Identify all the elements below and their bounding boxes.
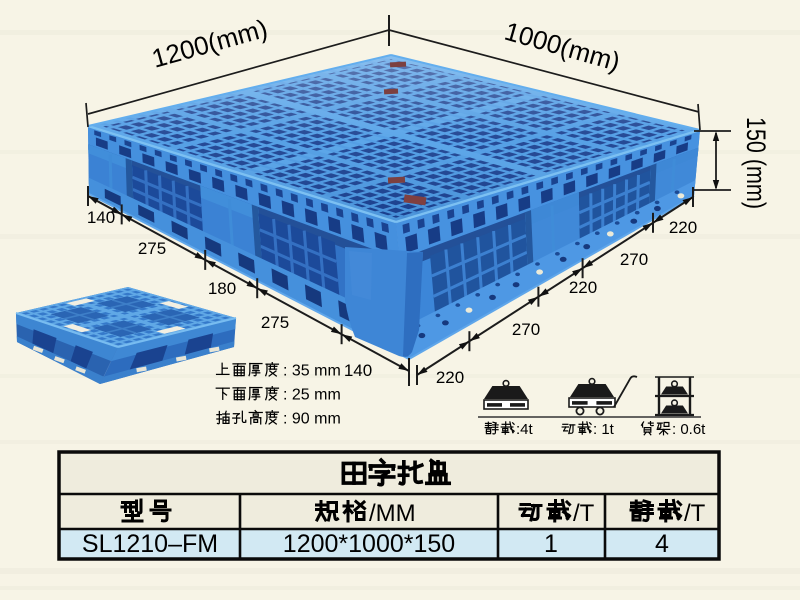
svg-text::4t: :4t: [516, 421, 534, 438]
svg-text:275: 275: [138, 239, 166, 258]
svg-text:270: 270: [512, 320, 540, 339]
svg-text:150 (mm): 150 (mm): [741, 117, 771, 209]
svg-text:: 90 mm: : 90 mm: [283, 411, 341, 428]
svg-text:1200*1000*150: 1200*1000*150: [283, 530, 455, 558]
svg-text:: 35 mm: : 35 mm: [283, 363, 341, 380]
svg-text:140: 140: [87, 208, 115, 227]
svg-text:220: 220: [569, 278, 597, 297]
svg-text:270: 270: [620, 250, 648, 269]
svg-text:4: 4: [655, 530, 669, 558]
svg-text:SL1210–FM: SL1210–FM: [82, 530, 218, 558]
svg-text:/T: /T: [684, 500, 706, 527]
svg-text:: 0.6t: : 0.6t: [672, 421, 706, 438]
svg-text:140: 140: [344, 361, 372, 380]
svg-text:275: 275: [261, 313, 289, 332]
svg-text:220: 220: [436, 368, 464, 387]
svg-text:180: 180: [208, 279, 236, 298]
svg-text:1: 1: [544, 530, 558, 558]
svg-text:220: 220: [669, 218, 697, 237]
svg-text:: 25 mm: : 25 mm: [283, 387, 341, 404]
svg-text:/T: /T: [573, 500, 595, 527]
svg-text:: 1t: : 1t: [593, 421, 615, 438]
svg-text:/MM: /MM: [369, 500, 416, 527]
